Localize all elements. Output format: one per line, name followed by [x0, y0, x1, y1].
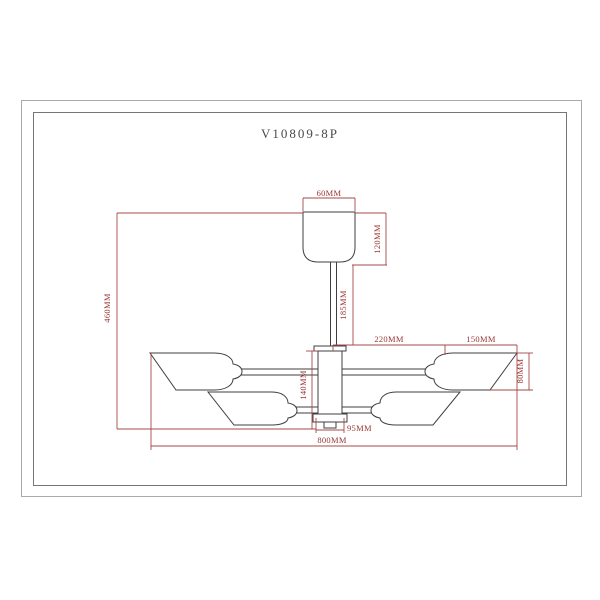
dimension-drawing-canvas: V10809-8P 60MM 120MM: [0, 0, 600, 600]
dim-95-label: 95MM: [347, 423, 372, 433]
dim-120-label: 120MM: [372, 224, 382, 254]
arm-lower-left: [295, 407, 318, 413]
arm-lower-right: [342, 407, 372, 413]
canopy-shape: [303, 212, 355, 262]
fixture-drawing: [150, 212, 517, 428]
dim-185-label: 185MM: [338, 290, 348, 320]
shade-lower-left: [208, 392, 297, 425]
drawing-page: V10809-8P 60MM 120MM: [0, 0, 600, 600]
dim-60-label: 60MM: [317, 188, 342, 198]
model-number-title: V10809-8P: [261, 126, 339, 141]
dim-220-label: 220MM: [374, 334, 404, 344]
dim-80-label: 80MM: [515, 358, 525, 383]
shade-upper-left: [150, 353, 242, 390]
hub-top-flange: [314, 346, 346, 351]
dim-460-label: 460MM: [102, 293, 112, 323]
inner-frame-border: [34, 113, 567, 486]
shade-lower-right: [371, 392, 460, 425]
dimension-canopy-height: 120MM: [352, 213, 387, 265]
dimension-canopy-diameter: 60MM: [303, 188, 355, 211]
dim-150-label: 150MM: [466, 334, 496, 344]
dim-800-label: 800MM: [317, 435, 347, 445]
hub-foot: [324, 422, 336, 428]
hub-bottom-cap: [313, 414, 347, 422]
dimension-stem-length: 185MM: [338, 265, 353, 345]
dimension-arm-and-shade: 220MM 150MM: [333, 334, 517, 355]
dim-140-label: 140MM: [298, 370, 308, 400]
shade-upper-right: [425, 353, 517, 390]
hub-body: [318, 351, 342, 414]
arm-upper-right: [342, 369, 429, 375]
